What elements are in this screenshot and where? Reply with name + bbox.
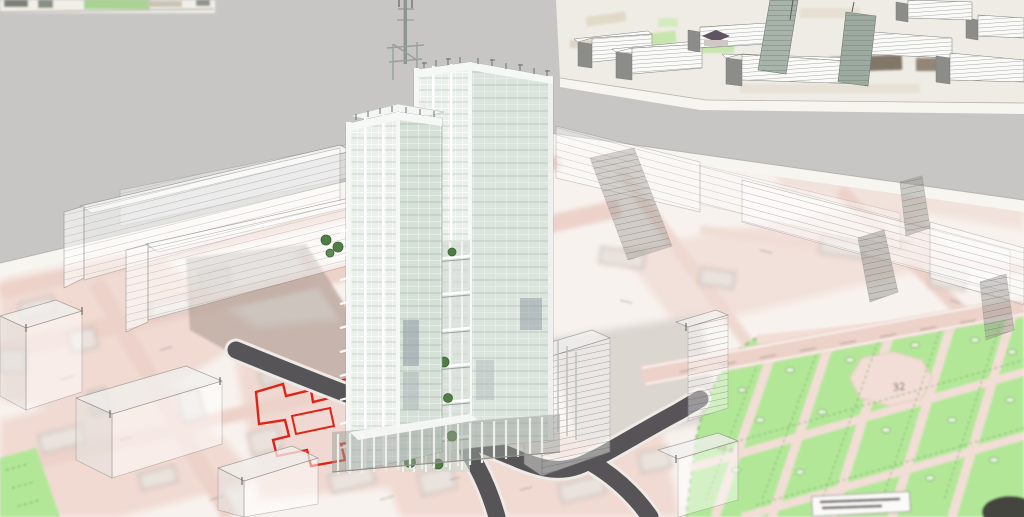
tower-south-wing: [340, 104, 444, 472]
3d-viewport[interactable]: 32 48-4: [0, 0, 1024, 517]
map-sliver-top-left: [0, 0, 215, 13]
massing-box-1: [0, 300, 82, 410]
distant-city-model: [556, 0, 1024, 114]
park-plaza-number: 32: [892, 382, 906, 394]
scene-canvas: 32 48-4: [0, 0, 1024, 517]
